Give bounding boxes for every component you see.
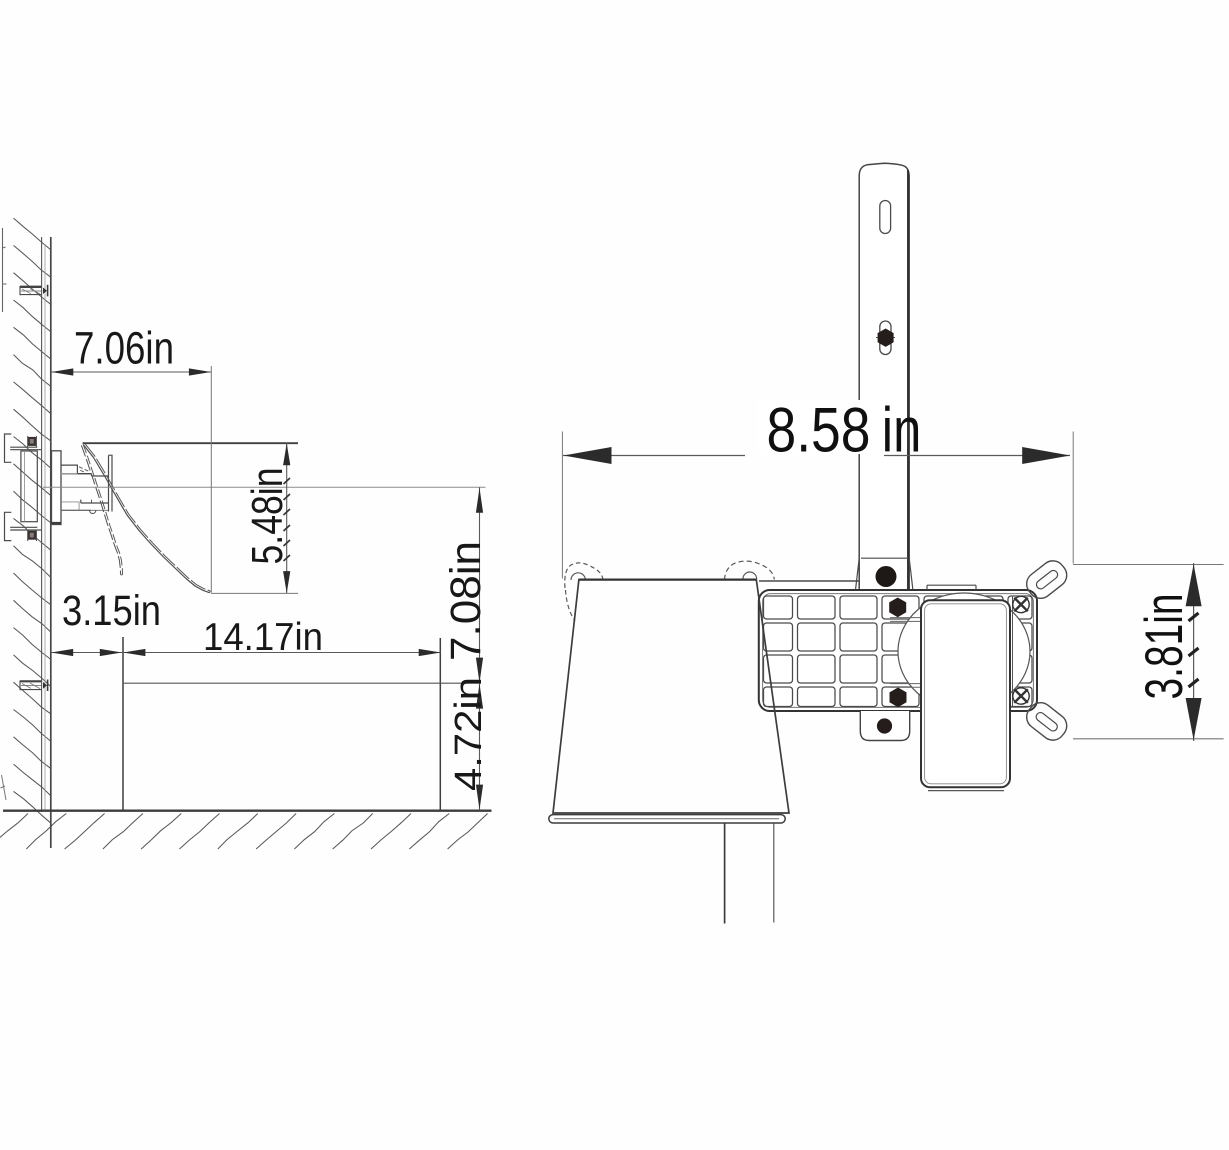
svg-text:7.06in: 7.06in	[74, 323, 174, 374]
svg-text:4.72in: 4.72in	[448, 677, 490, 791]
svg-text:7.08in: 7.08in	[442, 541, 490, 661]
svg-text:in: in	[882, 395, 922, 465]
svg-text:5.48in: 5.48in	[243, 468, 292, 565]
svg-text:14.17in: 14.17in	[203, 616, 323, 659]
svg-text:8.58: 8.58	[767, 395, 871, 465]
svg-text:3.15in: 3.15in	[62, 587, 161, 635]
svg-text:3.81in: 3.81in	[1135, 594, 1194, 700]
